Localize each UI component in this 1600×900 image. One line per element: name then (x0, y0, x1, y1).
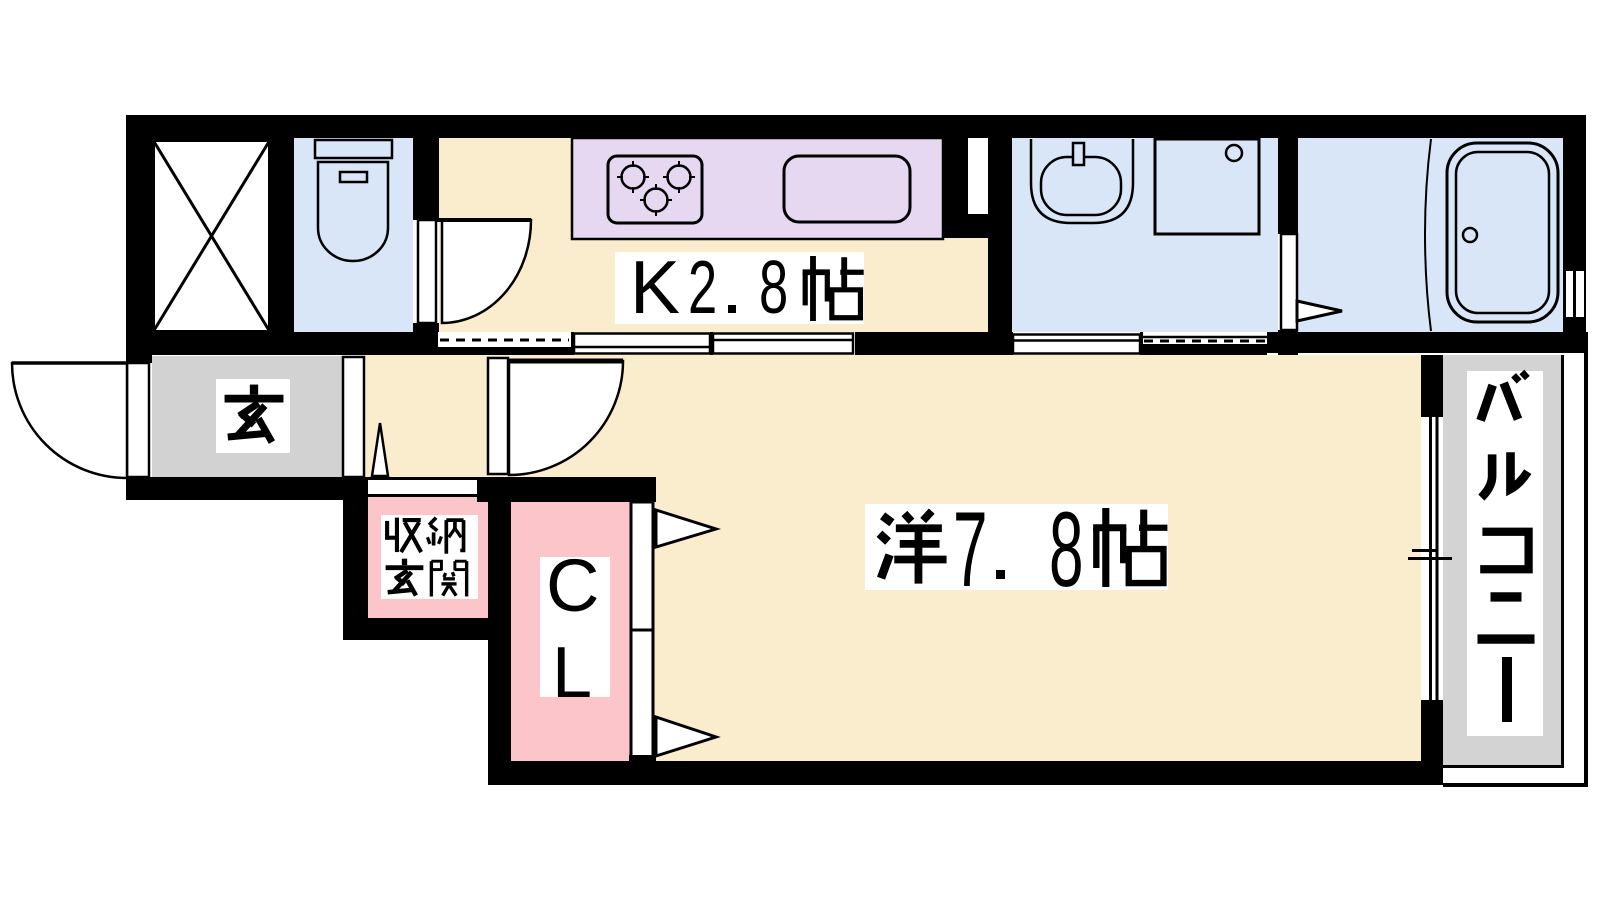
svg-text:8: 8 (1049, 489, 1084, 609)
svg-text:7: 7 (953, 489, 988, 609)
svg-text:8: 8 (759, 245, 788, 330)
svg-text:K: K (630, 245, 680, 329)
svg-text:2: 2 (688, 245, 717, 330)
svg-text:L: L (552, 633, 592, 713)
svg-text:C: C (546, 544, 599, 627)
